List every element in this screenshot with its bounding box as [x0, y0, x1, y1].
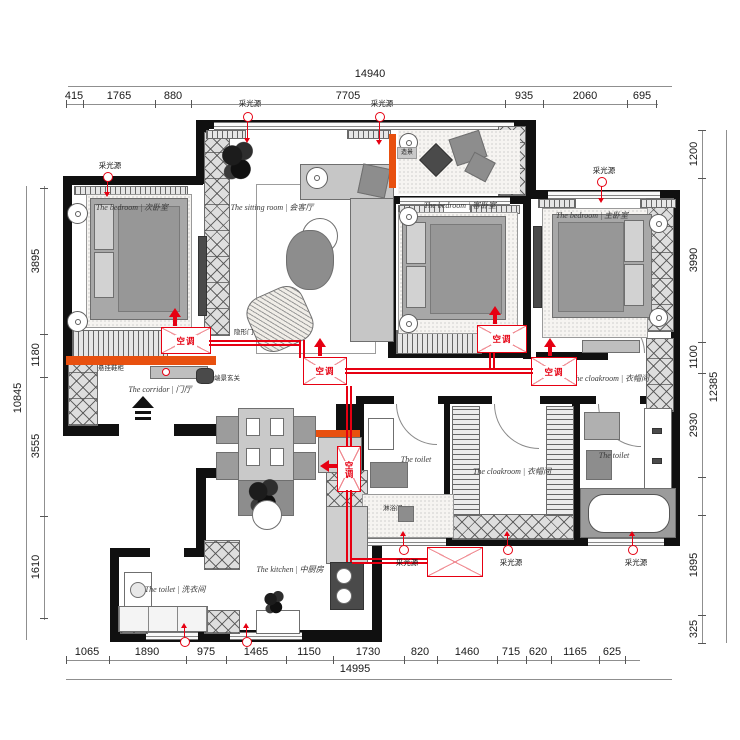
tick: [698, 373, 706, 374]
pipe: [489, 352, 491, 369]
curtain-hatch: [206, 130, 246, 139]
tick: [698, 477, 706, 478]
ac-label: 空调: [314, 365, 335, 377]
tick: [698, 130, 706, 131]
floor-drain: [398, 506, 414, 522]
ac-label: 空调: [491, 333, 512, 345]
light-source-marker: [242, 637, 252, 647]
tick: [543, 100, 544, 108]
blanket: [118, 206, 180, 312]
shower-column: [644, 408, 672, 492]
room-label: The toilet: [599, 452, 629, 461]
room-label: The corridor | 门厅: [128, 386, 191, 395]
light-source-marker: [399, 545, 409, 555]
dim-label: 10845: [12, 383, 24, 414]
tick: [698, 178, 706, 179]
room-label: The kitchen | 中厨房: [256, 566, 323, 575]
tick: [505, 100, 506, 108]
pillow: [406, 266, 426, 308]
tick: [627, 100, 628, 108]
dim-label: 415: [65, 90, 83, 102]
dim-line: [726, 130, 727, 643]
ac-unit-box: 空调: [337, 446, 361, 492]
arrow-down-icon: [598, 198, 604, 203]
light-source-stem: [184, 628, 185, 637]
dim-label: 1465: [244, 646, 268, 658]
entry-feature-item: [196, 368, 214, 384]
light-source-stem: [507, 536, 508, 545]
dim-label: 715: [502, 646, 520, 658]
tick: [698, 643, 706, 644]
plant: [222, 140, 256, 184]
dim-label: 625: [603, 646, 621, 658]
dim-label: 1895: [688, 553, 700, 577]
tv-panel: [533, 226, 542, 308]
room-label: The toilet: [401, 456, 431, 465]
door-gap: [492, 396, 540, 404]
wall: [63, 176, 203, 185]
ceiling-fan-icon: [67, 311, 88, 332]
arrow-down-icon: [244, 138, 250, 143]
tick: [191, 100, 192, 108]
blanket: [430, 224, 502, 314]
light-source-marker: [628, 545, 638, 555]
ac-unit-box: 空调: [303, 357, 347, 385]
pipe: [299, 340, 301, 358]
dim-line: [66, 660, 640, 661]
cabinet-hatch: [68, 360, 98, 426]
entry-arrow-head: [132, 396, 154, 408]
dim-label: 14940: [355, 68, 386, 80]
ceiling-fan-icon: [649, 214, 668, 233]
door-arc: [396, 404, 437, 445]
window: [588, 538, 664, 546]
window: [146, 632, 198, 640]
light-source-marker: [503, 545, 513, 555]
dim-label: 7705: [336, 90, 360, 102]
shower-handle: [652, 458, 662, 464]
pillow: [406, 222, 426, 264]
dim-label: 3895: [30, 249, 42, 273]
tick: [66, 656, 67, 664]
marker-icon: [162, 368, 170, 376]
dim-line: [44, 186, 45, 620]
sofa: [350, 198, 394, 342]
dim-label: 1765: [107, 90, 131, 102]
ceiling-fan-icon: [399, 314, 418, 333]
scenery-chip: 造景: [397, 147, 417, 159]
room-label: The toilet | 洗衣间: [145, 586, 206, 595]
arrow-down-icon: [376, 140, 382, 145]
light-source-stem: [601, 186, 602, 198]
ac-arrow-icon: [489, 306, 501, 315]
dim-label: 2060: [573, 90, 597, 102]
light-source-label: 采光源: [625, 557, 648, 568]
window: [368, 538, 446, 546]
place-setting: [270, 418, 284, 436]
pipe: [350, 386, 352, 446]
entry-arrow-bar: [135, 417, 151, 420]
light-source-stem: [632, 536, 633, 545]
side-table: [306, 167, 328, 189]
light-source-stem: [246, 628, 247, 637]
light-source-stem: [107, 181, 108, 192]
hidden-door-label: 隐形门: [234, 330, 254, 337]
tick: [40, 188, 48, 189]
light-source-marker: [180, 637, 190, 647]
pipe: [350, 490, 352, 562]
arrow-up-icon: [400, 531, 406, 536]
dim-label: 2930: [688, 413, 700, 437]
arrow-down-icon: [104, 192, 110, 197]
entry-arrow-icon: [132, 396, 154, 422]
burner: [336, 588, 352, 604]
tick: [599, 656, 600, 664]
scenery-label: 造景: [401, 150, 413, 156]
light-source-label: 采光源: [99, 160, 122, 171]
curtain-hatch: [347, 130, 391, 139]
pipe: [346, 490, 348, 562]
ac-arrow-icon: [320, 460, 329, 472]
dresser: [582, 340, 640, 353]
light-source-label: 采光源: [500, 557, 523, 568]
arrow-up-icon: [243, 623, 249, 628]
tick: [656, 100, 657, 108]
wardrobe-hatch: [646, 338, 674, 412]
chair: [292, 452, 316, 480]
light-source-stem: [403, 536, 404, 545]
ceiling-fan-icon: [399, 207, 418, 226]
light-source-label: 采光源: [371, 98, 394, 109]
chair: [216, 416, 240, 444]
pipe: [209, 344, 301, 346]
light-source-marker: [597, 177, 607, 187]
pipe: [346, 386, 348, 446]
dim-label: 1200: [688, 142, 700, 166]
tick: [109, 656, 110, 664]
pillow: [624, 220, 644, 262]
door-arc: [494, 404, 539, 449]
tick: [698, 615, 706, 616]
pillow: [94, 252, 114, 298]
dim-label: 975: [197, 646, 215, 658]
laundry-counter: [118, 606, 208, 632]
plant: [264, 590, 286, 616]
place-setting: [270, 448, 284, 466]
tick: [333, 656, 334, 664]
room-label: The cloakroom | 衣帽间: [473, 468, 551, 477]
dim-label: 1165: [563, 646, 587, 658]
counter-strip: [316, 430, 360, 437]
shoe-cabinet-label: 悬挂鞋柜: [98, 366, 124, 373]
ceiling-fan-icon: [649, 308, 668, 327]
light-source-stem: [247, 121, 248, 138]
curtain-hatch: [640, 199, 676, 208]
pipe: [209, 340, 301, 342]
dim-label: 1150: [297, 646, 321, 658]
entry-feature-label: 端景玄关: [214, 376, 240, 383]
pipe: [493, 352, 495, 369]
dim-label: 1730: [356, 646, 380, 658]
blanket: [558, 222, 624, 312]
dim-label: 695: [633, 90, 651, 102]
light-source-marker: [103, 172, 113, 182]
shower-handle: [652, 428, 662, 434]
ac-label: 空调: [342, 461, 356, 478]
dim-label: 620: [529, 646, 547, 658]
washbasin: [584, 412, 620, 440]
tick: [698, 342, 706, 343]
window: [548, 191, 660, 199]
cabinet-hatch: [204, 610, 240, 634]
dim-label: 325: [688, 620, 700, 638]
tick: [40, 516, 48, 517]
tick: [551, 656, 552, 664]
bathtub: [588, 494, 670, 533]
light-source-marker: [375, 112, 385, 122]
dim-label: 3990: [688, 248, 700, 272]
ceiling-fan-icon: [67, 203, 88, 224]
burner: [336, 568, 352, 584]
tick: [226, 656, 227, 664]
ac-unit-box: 空调: [531, 357, 577, 386]
room-label: The cloakroom | 衣帽间: [571, 375, 649, 384]
ac-unit-box: 空调: [161, 327, 211, 354]
curtain-hatch: [538, 199, 576, 208]
tick: [40, 618, 48, 619]
tick: [698, 515, 706, 516]
dim-label: 3555: [30, 434, 42, 458]
window: [214, 122, 514, 130]
chair: [292, 416, 316, 444]
dim-line: [702, 130, 703, 643]
dim-label: 880: [164, 90, 182, 102]
toilet-fixture: [370, 462, 408, 488]
room-label: The sitting room | 会客厅: [231, 204, 314, 213]
door-gap: [608, 352, 646, 360]
place-setting: [246, 418, 260, 436]
cabinet-hatch: [452, 514, 574, 540]
dim-label: 1100: [688, 345, 700, 369]
light-source-label: 采光源: [396, 557, 419, 568]
chair: [216, 452, 240, 480]
arrow-up-icon: [504, 531, 510, 536]
dim-label: 12385: [708, 372, 720, 403]
dim-label: 1890: [135, 646, 159, 658]
cabinet-hatch: [204, 540, 240, 570]
pipe: [345, 368, 533, 370]
room-label: The bedroom | 主卧室: [556, 212, 628, 221]
dim-line: [68, 86, 672, 87]
dim-label: 14995: [340, 663, 371, 675]
ac-unit-box: 空调: [477, 325, 527, 353]
door-gap: [596, 396, 640, 404]
arrow-up-icon: [181, 623, 187, 628]
door-gap: [150, 548, 184, 557]
tick: [155, 100, 156, 108]
ac-label: 空调: [175, 335, 196, 347]
tick: [40, 377, 48, 378]
tick: [497, 656, 498, 664]
ac-arrow-icon: [544, 338, 556, 347]
wardrobe-rail: [546, 406, 574, 516]
entry-arrow-bar: [135, 411, 151, 414]
wardrobe-rail: [452, 406, 480, 516]
pillow: [624, 264, 644, 306]
dim-label: 820: [411, 646, 429, 658]
dim-label: 1065: [75, 646, 99, 658]
ac-outdoor-unit-box: [427, 547, 483, 577]
tick: [404, 656, 405, 664]
tick: [526, 656, 527, 664]
pipe: [303, 340, 305, 358]
arrow-up-icon: [629, 531, 635, 536]
light-source-marker: [243, 112, 253, 122]
dim-label: 1460: [455, 646, 479, 658]
room-label: The bedroom | 次卧室: [96, 204, 168, 213]
dim-label: 935: [515, 90, 533, 102]
tick: [186, 656, 187, 664]
ac-label: 空调: [543, 366, 564, 378]
dim-label: 1610: [30, 555, 42, 579]
light-source-label: 采光源: [593, 165, 616, 176]
dim-label: 1180: [30, 343, 42, 367]
light-source-label: 采光源: [239, 98, 262, 109]
floor-plan: 14940 415 1765 880 7705 935 2060 695 106…: [0, 0, 740, 740]
shoe-cabinet-strip: [66, 356, 216, 365]
radiator-hatch: [72, 330, 168, 358]
tick: [437, 656, 438, 664]
stool: [252, 500, 282, 530]
light-source-stem: [379, 121, 380, 140]
place-setting: [246, 448, 260, 466]
ac-arrow-icon: [314, 338, 326, 347]
tick: [40, 334, 48, 335]
washer-door: [130, 582, 146, 598]
washbasin: [368, 418, 394, 450]
tick: [286, 656, 287, 664]
tick: [625, 656, 626, 664]
coffee-table: [286, 230, 334, 290]
tv-panel: [198, 236, 207, 316]
dim-line: [66, 679, 672, 680]
door-gap: [394, 396, 438, 404]
screen-door: [389, 134, 396, 188]
pipe: [345, 372, 533, 374]
room-label: The bedroom | 客卧室: [424, 202, 496, 211]
ac-arrow-icon: [169, 308, 181, 317]
dim-line: [26, 186, 27, 640]
